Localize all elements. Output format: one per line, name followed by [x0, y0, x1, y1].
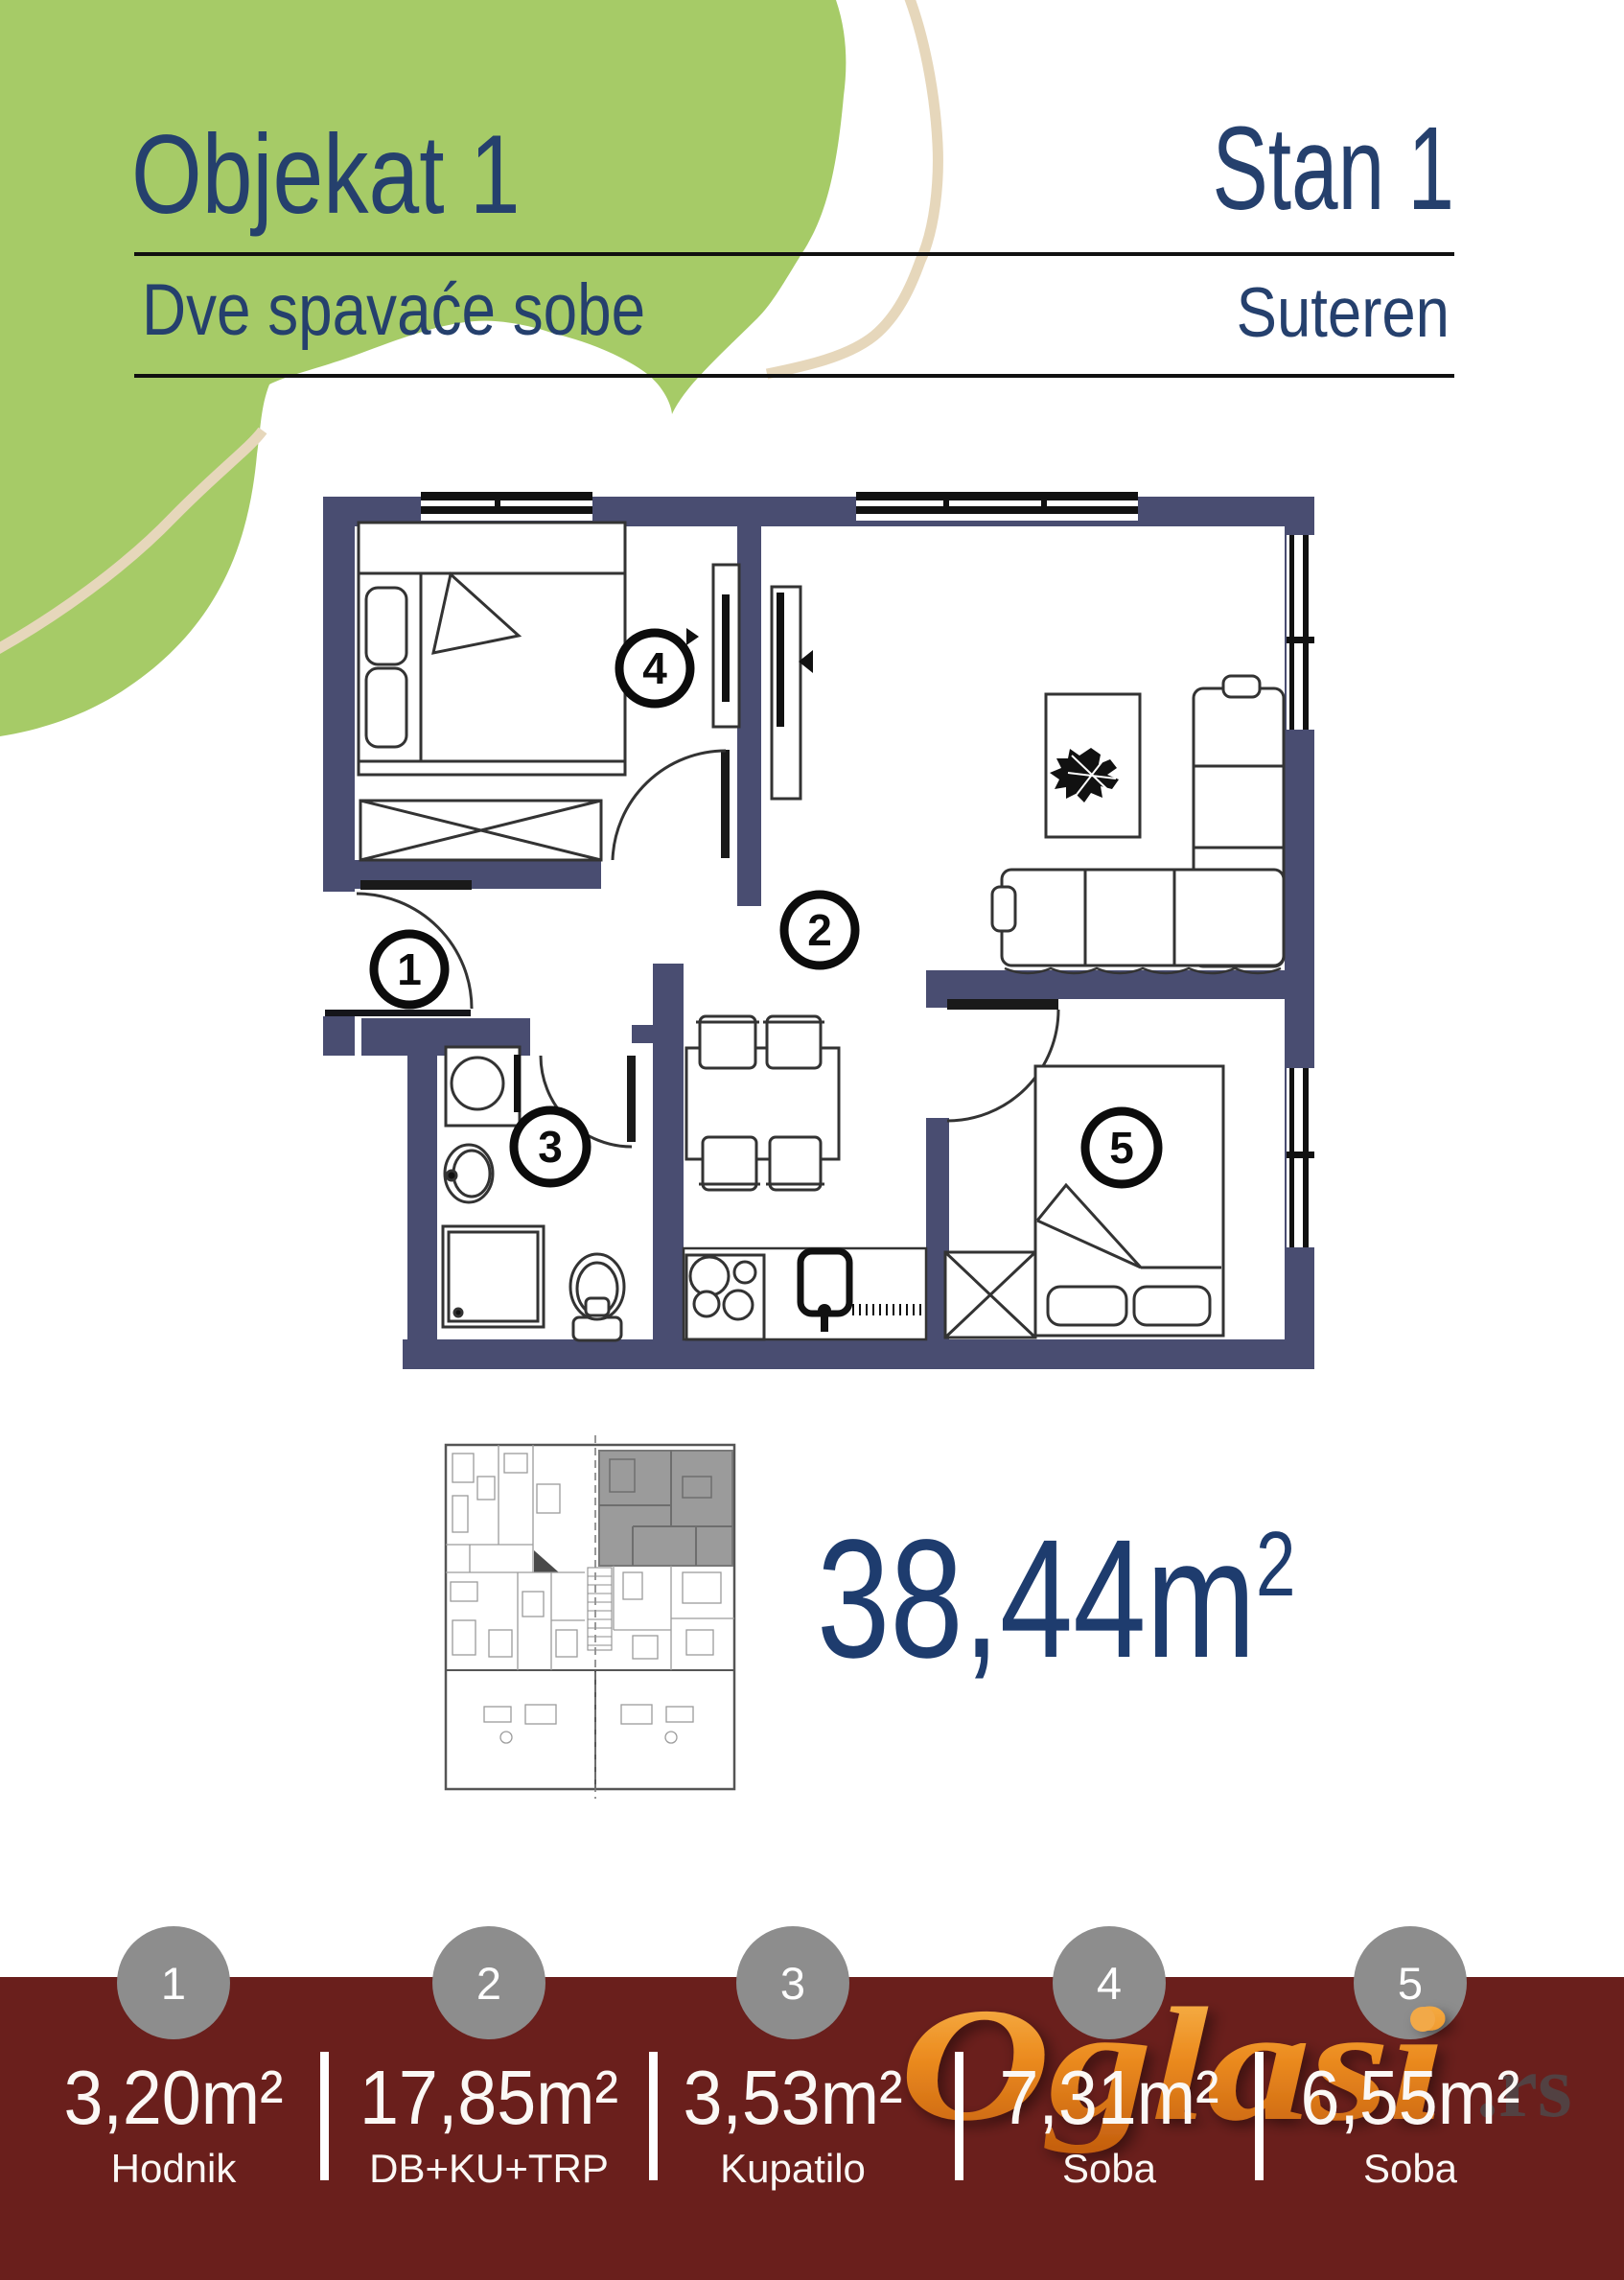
svg-text:Hodnik: Hodnik	[111, 2146, 238, 2191]
svg-text:2: 2	[807, 905, 832, 955]
svg-text:3: 3	[780, 1958, 805, 2009]
svg-text:DB+KU+TRP: DB+KU+TRP	[369, 2146, 609, 2191]
svg-text:2: 2	[476, 1958, 501, 2009]
svg-text:3: 3	[538, 1122, 563, 1172]
svg-text:Stan 1: Stan 1	[1213, 102, 1454, 234]
svg-text:17,85m²: 17,85m²	[360, 2055, 618, 2141]
svg-text:1: 1	[397, 944, 422, 994]
svg-text:Kupatilo: Kupatilo	[720, 2146, 866, 2191]
svg-text:4: 4	[642, 643, 667, 693]
svg-text:Suteren: Suteren	[1237, 274, 1450, 352]
svg-text:Objekat 1: Objekat 1	[131, 112, 521, 238]
svg-text:Dve spavaće sobe: Dve spavaće sobe	[142, 268, 645, 351]
svg-text:3,20m²: 3,20m²	[63, 2055, 283, 2141]
svg-text:3,53m²: 3,53m²	[683, 2055, 902, 2141]
svg-text:Soba: Soba	[1062, 2146, 1157, 2191]
svg-text:6,55m²: 6,55m²	[1300, 2055, 1520, 2141]
svg-text:5: 5	[1109, 1123, 1134, 1173]
svg-text:1: 1	[161, 1958, 186, 2009]
svg-text:Soba: Soba	[1363, 2146, 1458, 2191]
svg-text:7,31m²: 7,31m²	[999, 2055, 1218, 2141]
svg-text:38,44m2: 38,44m2	[817, 1505, 1296, 1693]
